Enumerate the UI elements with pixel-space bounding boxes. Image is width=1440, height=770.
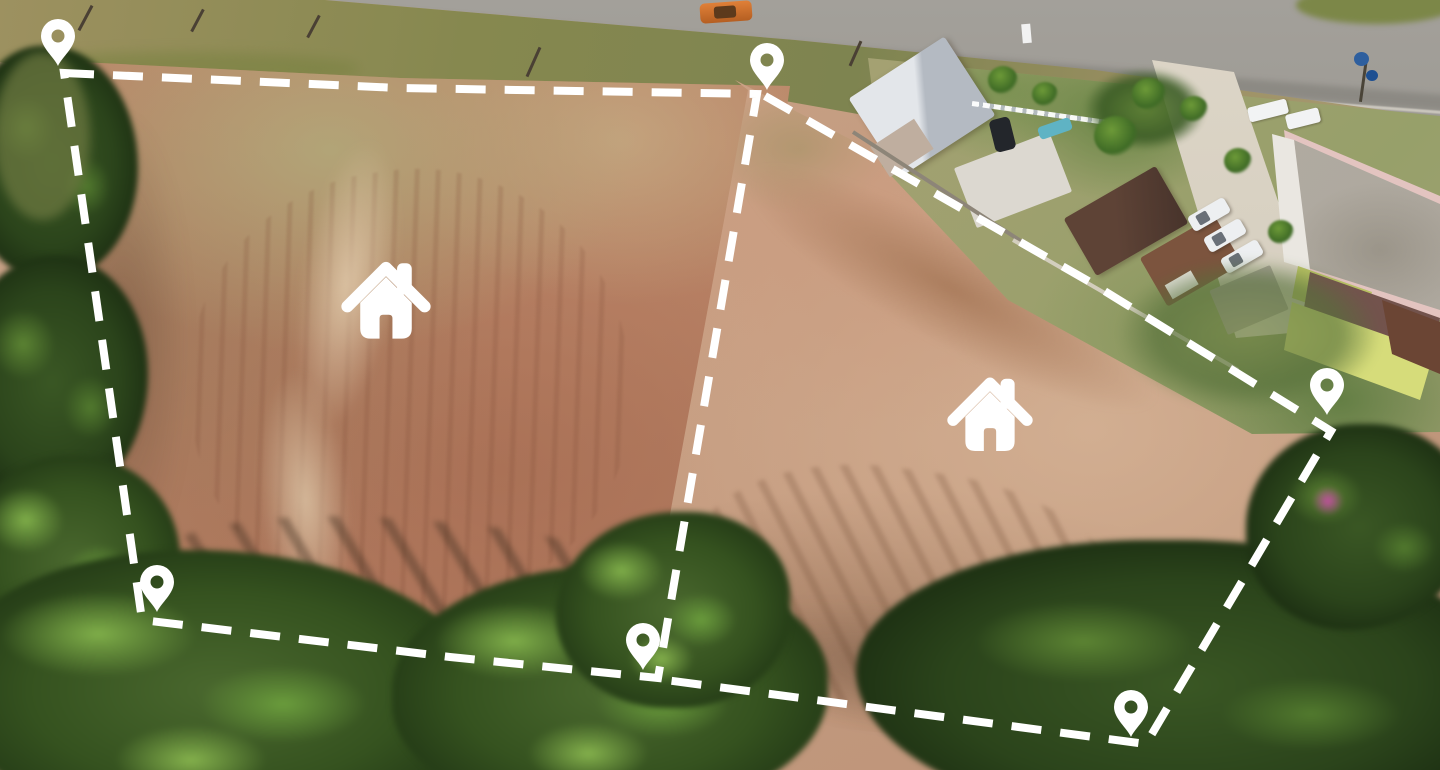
palm-tree xyxy=(1132,78,1166,110)
palm-tree xyxy=(1032,82,1058,106)
bougainvillea-flowers xyxy=(1312,486,1344,516)
blue-road-sign xyxy=(1366,70,1378,81)
blue-road-sign xyxy=(1354,52,1369,66)
road-sign xyxy=(1021,24,1032,44)
palm-tree xyxy=(1224,148,1252,174)
palm-tree xyxy=(1094,116,1138,156)
aerial-photo xyxy=(0,0,1440,770)
palm-tree xyxy=(1268,220,1294,244)
orange-car-on-road xyxy=(699,0,752,24)
palm-tree xyxy=(1180,96,1208,122)
palm-tree xyxy=(988,66,1018,94)
